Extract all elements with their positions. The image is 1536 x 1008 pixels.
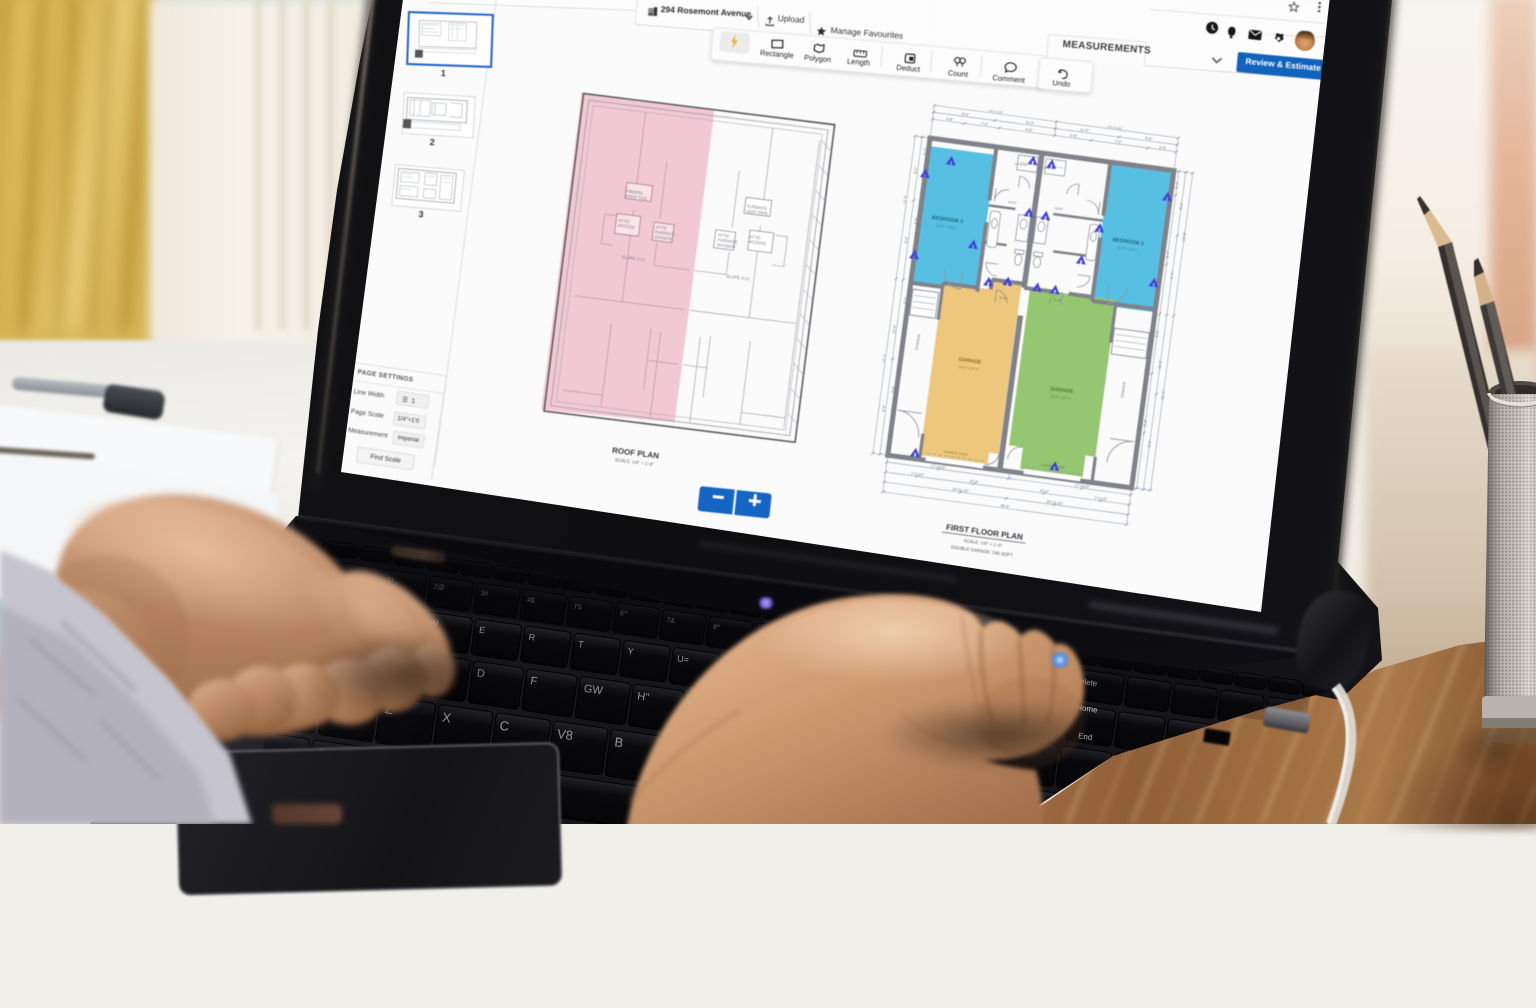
svg-text:5'-6": 5'-6" — [946, 117, 954, 122]
svg-text:FIRST FLOOR PLAN: FIRST FLOOR PLAN — [946, 523, 1024, 542]
svg-text:11'-0": 11'-0" — [1080, 128, 1090, 133]
svg-text:9'-6": 9'-6" — [1145, 137, 1153, 142]
svg-text:10'-2": 10'-2" — [1040, 489, 1050, 494]
svg-text:7'-0 1/2": 7'-0 1/2" — [1094, 496, 1108, 502]
svg-text:<: < — [867, 825, 878, 843]
svg-text:11'-8": 11'-8" — [1158, 359, 1163, 369]
svg-text:11'-0": 11'-0" — [1025, 121, 1035, 126]
svg-text:8'-4": 8'-4" — [1165, 250, 1170, 258]
svg-text:5'-2": 5'-2" — [1175, 181, 1180, 189]
svg-text:>: > — [990, 843, 1001, 861]
svg-text:7'-2": 7'-2" — [1114, 140, 1122, 145]
svg-text:DOUBLE GARAGE: 246 SQFT: DOUBLE GARAGE: 246 SQFT — [951, 544, 1014, 557]
svg-text:7'-0 1/2": 7'-0 1/2" — [911, 472, 925, 478]
svg-text:SLOPE 4:12: SLOPE 4:12 — [726, 274, 750, 282]
svg-text:4'-8": 4'-8" — [1025, 128, 1033, 133]
svg-text:4'-8": 4'-8" — [1070, 134, 1078, 139]
svg-text:6'-4": 6'-4" — [1170, 271, 1175, 279]
svg-text:^: ^ — [928, 834, 937, 852]
svg-text:9'-6": 9'-6" — [1147, 439, 1152, 447]
svg-text:BATH: BATH — [1008, 200, 1016, 205]
svg-text:STORAGE: STORAGE — [915, 333, 921, 351]
svg-text:STORAGE: STORAGE — [1120, 381, 1126, 399]
svg-text:10'-2": 10'-2" — [969, 479, 979, 484]
svg-text:11'-8": 11'-8" — [892, 324, 897, 334]
svg-text:46'-5": 46'-5" — [1000, 504, 1010, 509]
svg-text:BATH: BATH — [1055, 206, 1063, 211]
svg-text:LAUNDRY: LAUNDRY — [1015, 162, 1029, 168]
svg-text:21'-2": 21'-2" — [1161, 390, 1166, 400]
svg-text:9'-6": 9'-6" — [962, 112, 970, 117]
svg-text:6'-2": 6'-2" — [1155, 329, 1160, 337]
svg-text:9'-2": 9'-2" — [1179, 201, 1184, 209]
svg-text:5'-6": 5'-6" — [1159, 145, 1167, 150]
svg-text:V8: V8 — [556, 726, 574, 743]
svg-text:7'-2": 7'-2" — [981, 122, 989, 127]
svg-text:8'-8": 8'-8" — [1143, 419, 1148, 427]
svg-text:13'-6": 13'-6" — [1182, 231, 1187, 241]
